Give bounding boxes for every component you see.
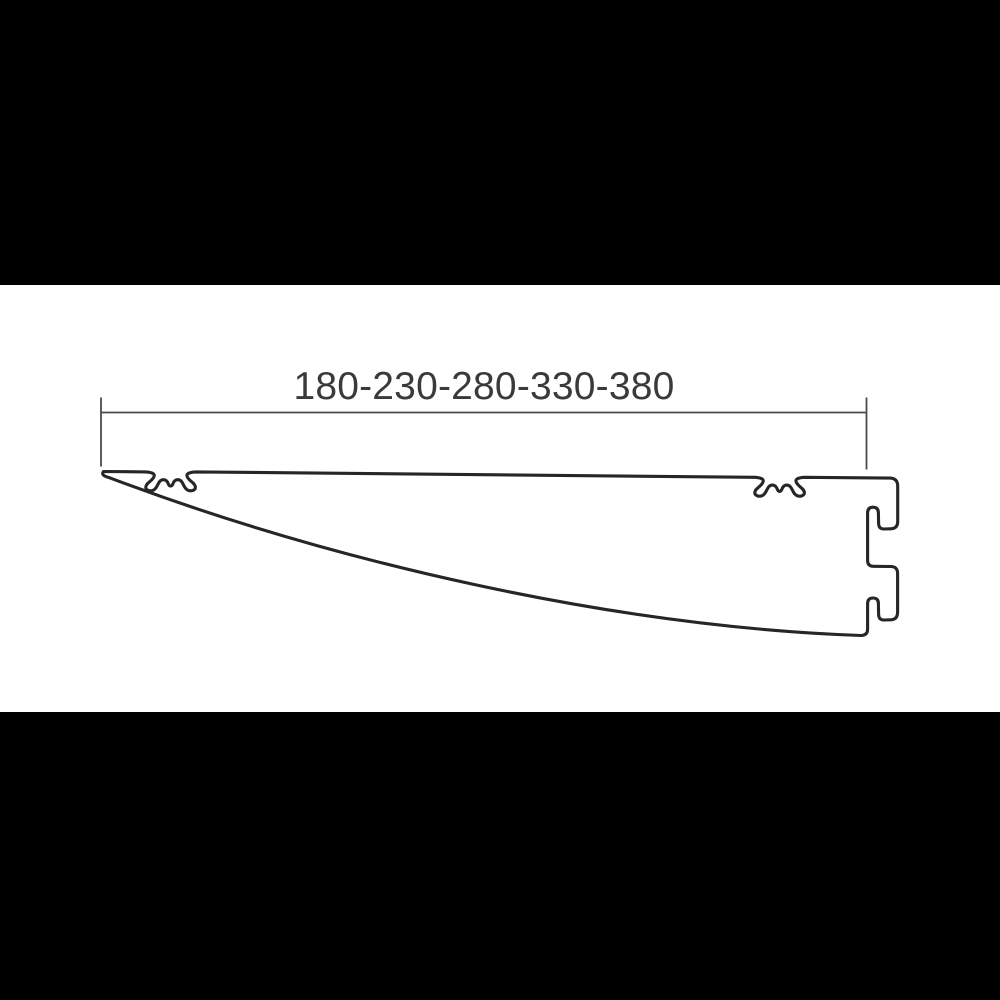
drawing-background: [0, 285, 1000, 712]
dimension-label: 180-230-280-330-380: [293, 365, 674, 408]
bracket-diagram-svg: 180-230-280-330-380: [0, 0, 1000, 1000]
letterboxed-canvas: 180-230-280-330-380: [0, 0, 1000, 1000]
